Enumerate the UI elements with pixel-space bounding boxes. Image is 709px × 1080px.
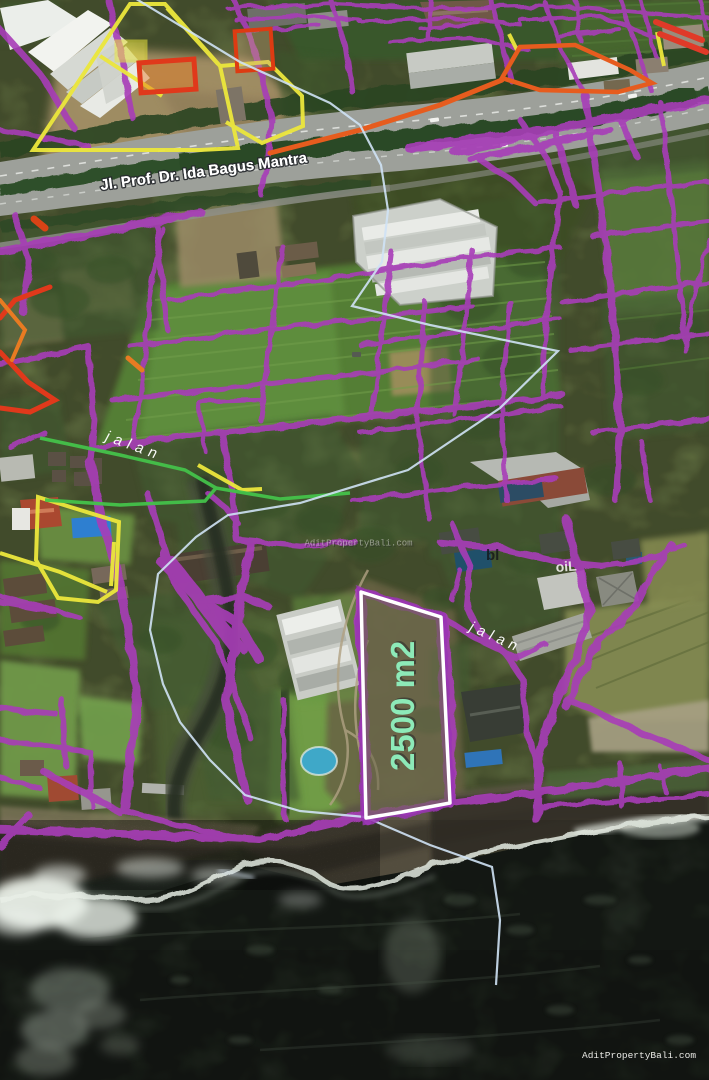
svg-text:AditPropertyBali.com: AditPropertyBali.com xyxy=(305,539,413,549)
svg-text:oiL: oiL xyxy=(555,558,578,575)
svg-text:AditPropertyBali.com: AditPropertyBali.com xyxy=(582,1050,696,1061)
svg-text:bl: bl xyxy=(486,547,499,564)
svg-text:2500 m2: 2500 m2 xyxy=(384,641,421,771)
